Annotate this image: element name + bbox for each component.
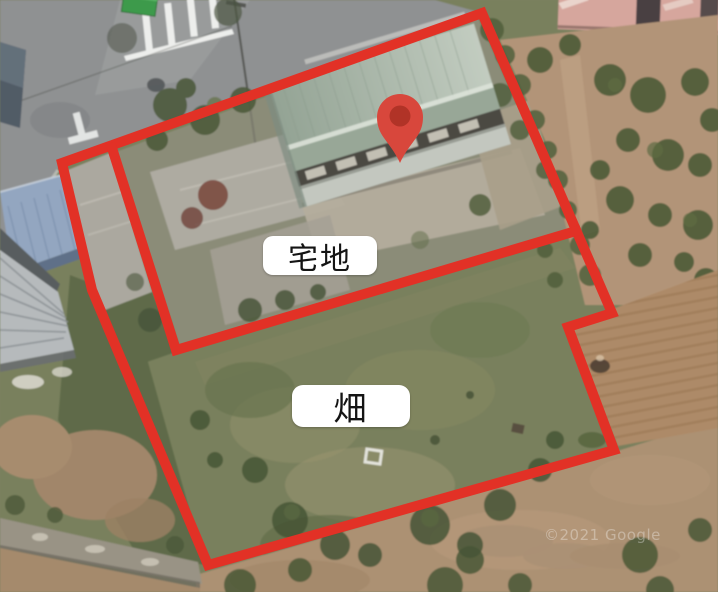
aerial-photo xyxy=(0,0,718,592)
map-watermark: ©2021 Google xyxy=(544,526,661,544)
parcel-label-hatake: 畑 xyxy=(292,385,410,427)
parcel-label-takuchi: 宅地 xyxy=(263,236,377,275)
map-pin-inner-circle xyxy=(390,106,411,127)
satellite-map[interactable]: 宅地 畑 ©2021 Google xyxy=(0,0,718,592)
tree-shadow xyxy=(107,23,137,53)
